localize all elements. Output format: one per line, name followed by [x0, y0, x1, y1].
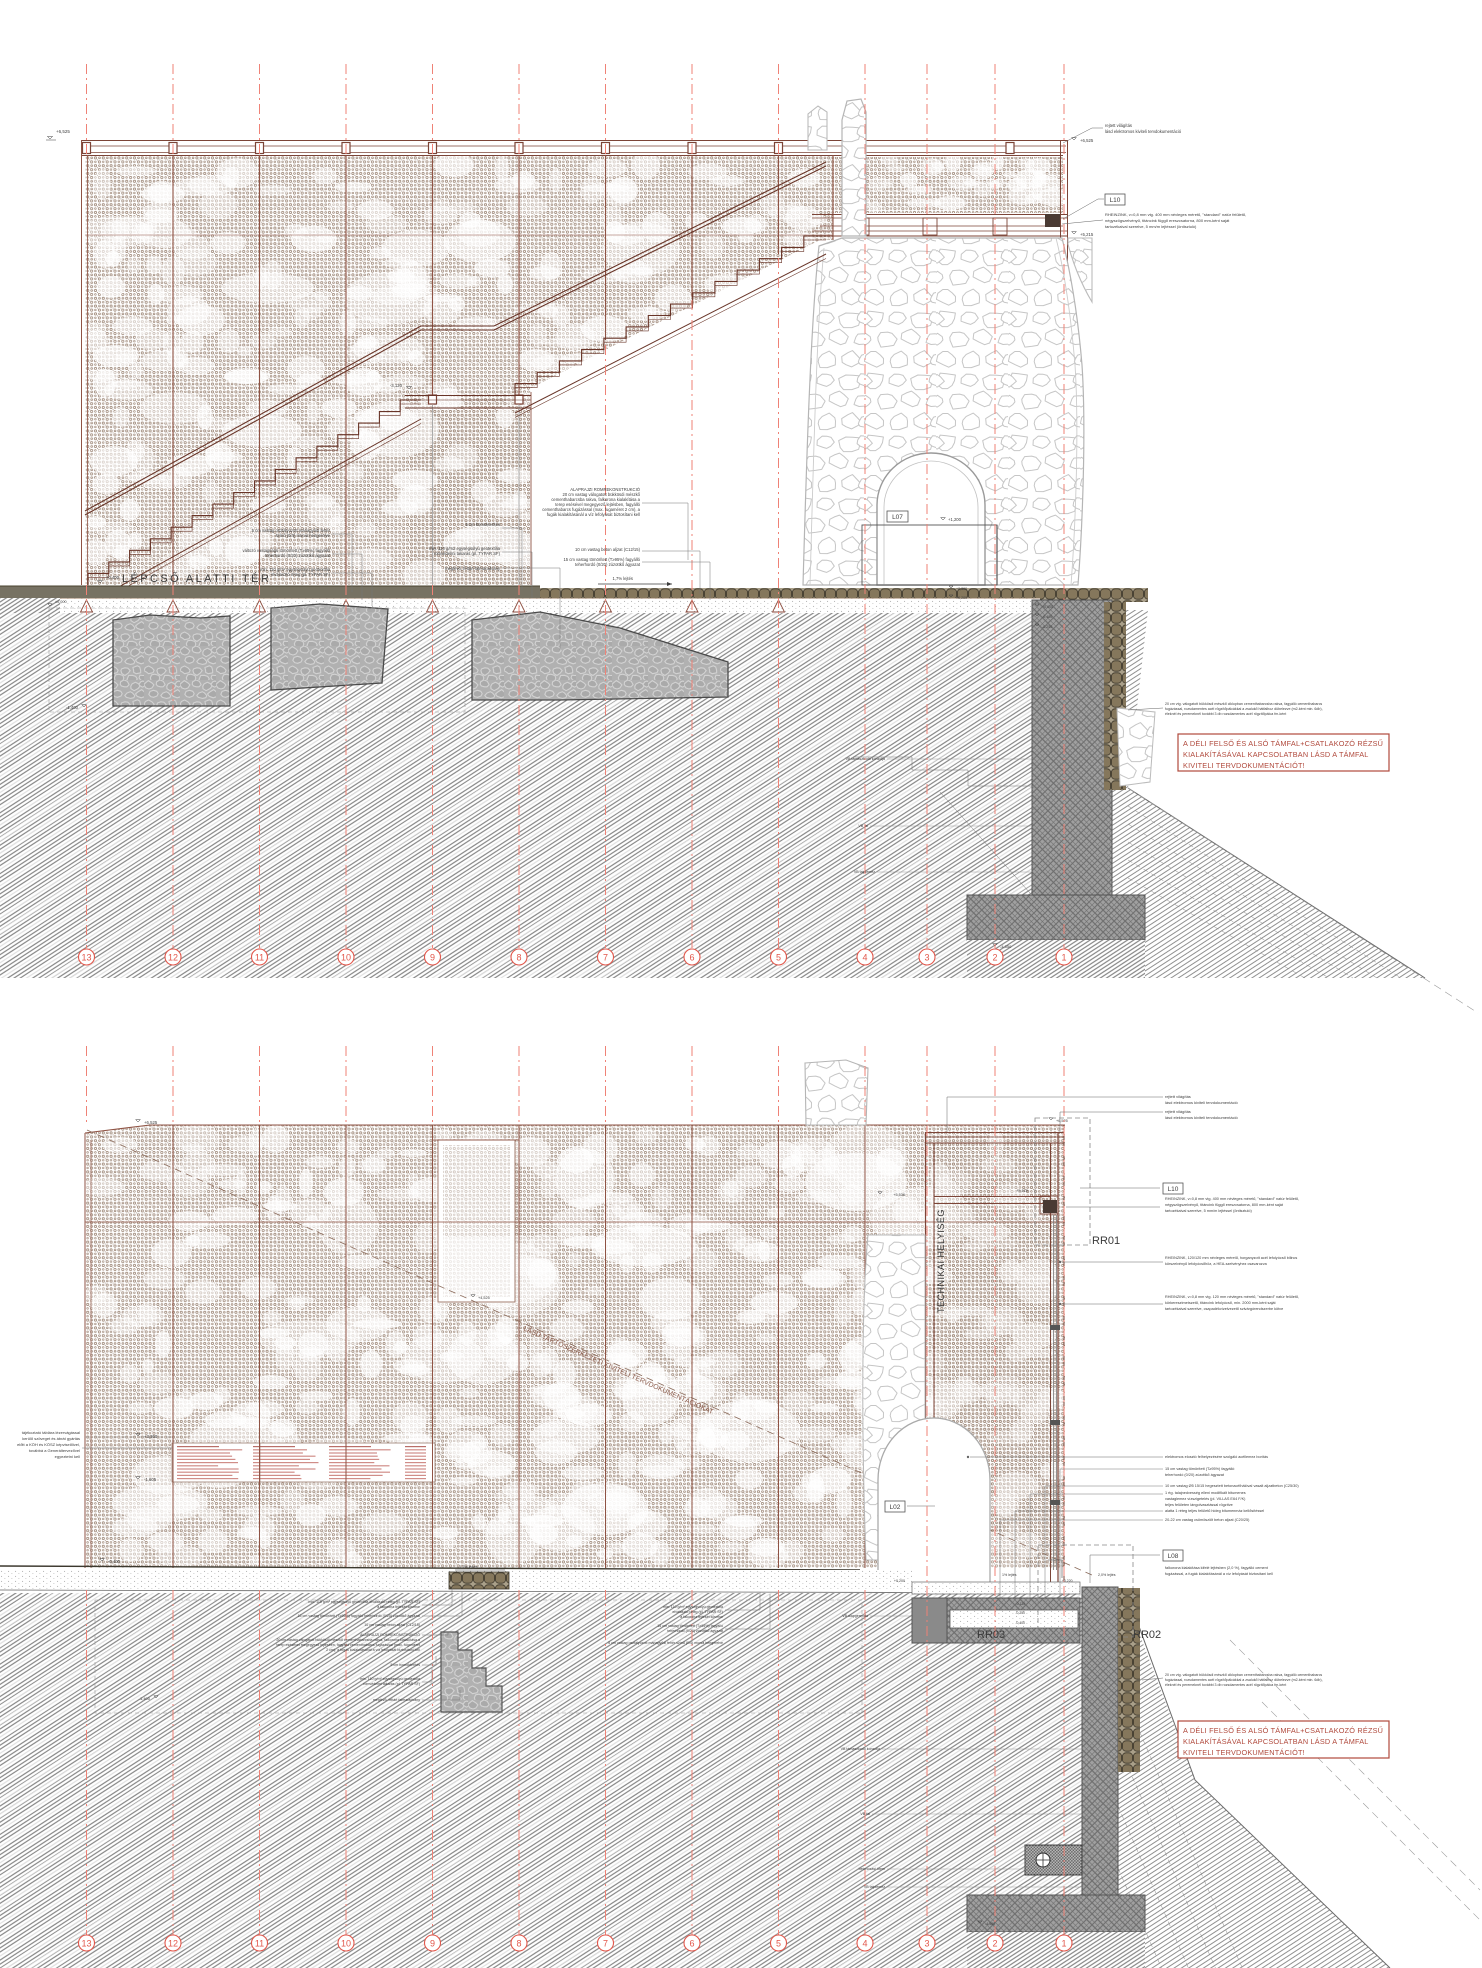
svg-text:teljes felületen lángolvasztás: teljes felületen lángolvasztással rögzít… [1165, 1503, 1233, 1507]
svg-text:1,7% lejtés: 1,7% lejtés [459, 1565, 478, 1569]
svg-text:1% lejtés: 1% lejtés [1002, 1573, 1017, 1577]
svg-text:5: 5 [776, 953, 781, 963]
svg-text:KIVITELI TERVDOKUMENTÁCIÓT!: KIVITELI TERVDOKUMENTÁCIÓT! [1183, 1748, 1305, 1757]
svg-text:VB fal: VB fal [858, 824, 868, 828]
svg-text:2: 2 [992, 1939, 997, 1949]
svg-text:rejtett világítás: rejtett világítás [1165, 1094, 1191, 1099]
svg-text:-1,400: -1,400 [66, 705, 79, 710]
svg-text:6: 6 [689, 1939, 694, 1949]
svg-text:+4,525: +4,525 [478, 1296, 490, 1300]
svg-text:10 cm vastag beton aljzat (C12: 10 cm vastag beton aljzat (C12/15) [364, 1623, 420, 1627]
svg-text:éleknél és peremeknél további: éleknél és peremeknél további 3 db rozsd… [1165, 712, 1286, 716]
svg-text:10 cm vastag beton aljzat (C12: 10 cm vastag beton aljzat (C12/15) [575, 547, 641, 552]
svg-text:11: 11 [255, 1939, 264, 1949]
svg-text:teherhordó (0/20) zúzottkő ágy: teherhordó (0/20) zúzottkő ágyazat [575, 562, 641, 567]
svg-text:tartozékaival szerelve, 5 mm/m: tartozékaival szerelve, 5 mm/m lejtéssel… [1105, 224, 1197, 229]
svg-text:4: 4 [862, 953, 867, 963]
svg-text:9: 9 [430, 1939, 435, 1949]
svg-text:+5,215: +5,215 [1080, 232, 1094, 237]
svg-text:+0,400: +0,400 [106, 575, 120, 580]
svg-text:20-22 cm vastag csömöszölt bet: 20-22 cm vastag csömöszölt beton aljzat … [1165, 1518, 1250, 1522]
svg-text:RHEINZINK, v=0,8 mm vtg. 400 m: RHEINZINK, v=0,8 mm vtg. 400 mm névleges… [1165, 1197, 1299, 1201]
svg-text:+5,510: +5,510 [1016, 1189, 1028, 1193]
svg-text:3: 3 [924, 1939, 929, 1949]
svg-text:négyszögszelvényű, titáncink f: négyszögszelvényű, titáncink függő eresz… [1165, 1203, 1284, 1207]
svg-text:L08: L08 [1168, 1553, 1179, 1560]
svg-text:12: 12 [168, 1939, 178, 1949]
svg-text:meglévő, feltárt falmaradvány: meglévő, feltárt falmaradvány [445, 566, 501, 571]
svg-text:20 cm vtg. válogatott bükkösdi: 20 cm vtg. válogatott bükkösdi mészkő ci… [1165, 1673, 1322, 1677]
svg-text:+0,300: +0,300 [956, 587, 967, 591]
svg-text:fugázással, a fugák kialakítás: fugázással, a fugák kialakításánál a víz… [1165, 1572, 1273, 1576]
svg-text:vastaglemez vízszigetelés (pl.: vastaglemez vízszigetelés (pl. VILLAS E6… [1165, 1497, 1246, 1501]
svg-text:+0,220: +0,220 [1062, 1579, 1073, 1583]
svg-text:ALAPRAJZI ROMREKONSTRUKCIÓ: ALAPRAJZI ROMREKONSTRUKCIÓ [360, 1632, 420, 1637]
svg-text:KIALAKÍTÁSÁVAL KAPCSOLATBAN LÁ: KIALAKÍTÁSÁVAL KAPCSOLATBAN LÁSD A TÁMFA… [1183, 750, 1369, 759]
svg-text:L07: L07 [892, 514, 903, 521]
svg-text:színű (0/4) murva hengerelve: színű (0/4) murva hengerelve [276, 533, 331, 538]
svg-text:5: 5 [776, 1939, 781, 1949]
svg-text:+3,300: +3,300 [144, 1434, 158, 1439]
svg-text:elválasztó réteg (pl. TYPAR SF: elválasztó réteg (pl. TYPAR SF) [672, 1610, 723, 1614]
svg-text:5 cm homokterítés: 5 cm homokterítés [390, 1663, 420, 1667]
svg-text:13: 13 [81, 1939, 91, 1949]
svg-text:falkorona kialakítása kifelé l: falkorona kialakítása kifelé lejtésben (… [1165, 1566, 1269, 1570]
svg-text:előtt a KÖH és KÖSZ képviselői: előtt a KÖH és KÖSZ képviselőivel, [17, 1442, 80, 1447]
svg-text:+6,525: +6,525 [144, 1120, 158, 1125]
svg-text:10 cm vastag Ø5 15/15 hegeszte: 10 cm vastag Ø5 15/15 hegesztett betonac… [1165, 1484, 1299, 1488]
svg-text:2: 2 [992, 953, 997, 963]
svg-text:min. 110 g/m² egységsúlyú geot: min. 110 g/m² egységsúlyú geotextília [360, 1677, 420, 1681]
svg-text:+6,525: +6,525 [1080, 138, 1094, 143]
svg-text:+0,200: +0,200 [894, 1579, 905, 1583]
svg-text:20 cm vastag válogatott bükkös: 20 cm vastag válogatott bükkösdi mészkő … [276, 1638, 420, 1642]
svg-text:+1,200: +1,200 [948, 517, 962, 522]
svg-text:elválasztó réteg (pl. TYPAR SF: elválasztó réteg (pl. TYPAR SF) [271, 572, 331, 577]
svg-text:-0,400: -0,400 [108, 1559, 121, 1564]
svg-text:RR01: RR01 [1092, 1235, 1120, 1247]
svg-text:tartozékaival szerelve, 5 mm/m: tartozékaival szerelve, 5 mm/m lejtéssel… [1165, 1209, 1252, 1213]
svg-text:teherhordó (0/20) zúzottkő ágy: teherhordó (0/20) zúzottkő ágyazat [1165, 1473, 1225, 1477]
svg-text:romvédelmi takarás (pl. TYPAR: romvédelmi takarás (pl. TYPAR SF) [363, 1682, 420, 1686]
svg-text:min. 110 g/m² egységsúlyú geot: min. 110 g/m² egységsúlyú geotextília [663, 1605, 723, 1609]
svg-text:továbbá a Generáltervezővel: továbbá a Generáltervezővel [29, 1448, 80, 1453]
svg-text:négyszögszelvényű, titáncink f: négyszögszelvényű, titáncink függő eresz… [1105, 218, 1230, 223]
svg-text:-0,400: -0,400 [1015, 1621, 1025, 1625]
svg-text:tájékoztató táblára lézervágás: tájékoztató táblára lézervágással [22, 1430, 80, 1435]
svg-text:L02: L02 [890, 1504, 901, 1511]
svg-text:13: 13 [81, 953, 91, 963]
svg-text:fugák kialakításánál a víz lef: fugák kialakításánál a víz lefolyását bi… [547, 512, 640, 517]
svg-text:5 cm vastag osztályozott mária: 5 cm vastag osztályozott máriagyűdi fehé… [608, 1641, 723, 1645]
svg-text:VB támaszkodó konzolja: VB támaszkodó konzolja [841, 1747, 880, 1751]
svg-text:VB fal: VB fal [860, 1812, 870, 1816]
svg-text:10: 10 [341, 953, 351, 963]
svg-text:VB alapgerenda: VB alapgerenda [842, 1614, 868, 1618]
svg-text:20 cm vtg. válogatott bükkösdi: 20 cm vtg. válogatott bükkösdi mészkő ci… [1165, 702, 1322, 706]
svg-text:éleknél és peremeknél további: éleknél és peremeknél további 3 db rozsd… [1165, 1683, 1286, 1687]
svg-text:romvédelmi takarás (pl. TYPAR: romvédelmi takarás (pl. TYPAR SF) [434, 551, 501, 556]
svg-text:12: 12 [168, 953, 178, 963]
svg-text:-0,110: -0,110 [1016, 1602, 1025, 1606]
svg-text:tartozékaival szerelve, csapad: tartozékaival szerelve, csapadékvízelvez… [1165, 1307, 1283, 1311]
svg-text:+0,000: +0,000 [1042, 605, 1053, 609]
svg-text:-4,550: -4,550 [985, 1922, 995, 1926]
svg-text:1 rtg. talajnedvesség elleni m: 1 rtg. talajnedvesség elleni modifikált … [1165, 1491, 1246, 1495]
svg-text:fugázással, rozsdamentes acél: fugázással, rozsdamentes acél rögzítőpál… [1165, 1678, 1323, 1682]
svg-text:rejtett világítás: rejtett világítás [1165, 1109, 1191, 1114]
svg-text:elektromos elosztó felhelyezés: elektromos elosztó felhelyezésére szolgá… [1165, 1455, 1268, 1459]
svg-text:4: 4 [862, 1939, 867, 1949]
svg-text:L10: L10 [1168, 1186, 1179, 1193]
svg-text:3: 3 [924, 953, 929, 963]
svg-text:RHEINZINK, v=0,8 mm vtg. 400 m: RHEINZINK, v=0,8 mm vtg. 400 mm névleges… [1105, 212, 1246, 217]
svg-text:teherhordó (0/20) zúzottkő ágy: teherhordó (0/20) zúzottkő ágyazat [667, 1629, 723, 1633]
svg-text:11: 11 [255, 953, 264, 963]
svg-text:RR02: RR02 [1133, 1629, 1161, 1641]
svg-text:L10: L10 [1110, 197, 1121, 204]
svg-text:kerülő szöveget és ábrát gyárt: kerülő szöveget és ábrát gyártás [22, 1436, 80, 1441]
svg-text:6: 6 [689, 953, 694, 963]
svg-text:-0,400: -0,400 [1042, 615, 1052, 619]
svg-text:2,0% lejtés: 2,0% lejtés [1098, 1573, 1116, 1577]
svg-text:lásd elektromos kiviteli tervd: lásd elektromos kiviteli tervdokumentáci… [1105, 129, 1182, 134]
svg-text:lásd elektromos kiviteli tervd: lásd elektromos kiviteli tervdokumentáci… [1165, 1115, 1238, 1120]
svg-text:terep esésével megegyező lejté: terep esésével megegyező lejtésben, fagy… [276, 1643, 420, 1647]
svg-text:9: 9 [430, 953, 435, 963]
svg-text:15 cm vastag tömörített (T≥95%: 15 cm vastag tömörített (T≥95%) fagyálló… [298, 1614, 420, 1618]
svg-text:körszelvényű lefolyócsőhöz, a: körszelvényű lefolyócsőhöz, a HEA-szelvé… [1165, 1262, 1268, 1266]
svg-text:-1,605: -1,605 [144, 1477, 157, 1482]
svg-text:10: 10 [341, 1939, 351, 1949]
svg-text:a fakorona lejtését követve: a fakorona lejtését követve [680, 1615, 723, 1619]
svg-text:+5,536: +5,536 [893, 1193, 905, 1197]
svg-text:betonozási ütem: betonozási ütem [859, 1867, 885, 1871]
svg-text:KIALAKÍTÁSÁVAL KAPCSOLATBAN LÁ: KIALAKÍTÁSÁVAL KAPCSOLATBAN LÁSD A TÁMFA… [1183, 1737, 1369, 1746]
svg-text:8: 8 [516, 953, 521, 963]
svg-text:fugázással, rozsdamentes acél: fugázással, rozsdamentes acél rögzítőpál… [1165, 707, 1323, 711]
svg-text:15 cm vastag tömörített (T≥95%: 15 cm vastag tömörített (T≥95%) fagyálló [1165, 1467, 1234, 1471]
svg-text:alatta 1 réteg teljes felületű: alatta 1 réteg teljes felületű hideg bit… [1165, 1509, 1264, 1513]
svg-text:A DÉLI FELSŐ ÉS ALSÓ TÁMFAL+CS: A DÉLI FELSŐ ÉS ALSÓ TÁMFAL+CSATLAKOZÓ R… [1183, 1726, 1383, 1735]
svg-text:8: 8 [516, 1939, 521, 1949]
svg-text:+6,525: +6,525 [56, 129, 70, 134]
svg-text:RHEINZINK, v=0,8 mm vtg. 120 m: RHEINZINK, v=0,8 mm vtg. 120 mm névleges… [1165, 1295, 1299, 1299]
svg-text:-0,250: -0,250 [1042, 625, 1052, 629]
svg-text:A DÉLI FELSŐ ÉS ALSÓ TÁMFAL+CS: A DÉLI FELSŐ ÉS ALSÓ TÁMFAL+CSATLAKOZÓ R… [1183, 739, 1383, 748]
svg-text:körkeresztmetszetű, titáncink: körkeresztmetszetű, titáncink lefolyócső… [1165, 1301, 1277, 1305]
svg-text:5 cm homokterítés: 5 cm homokterítés [466, 522, 500, 527]
svg-text:+6,525: +6,525 [1056, 1119, 1068, 1123]
svg-text:egyeztetni kell: egyeztetni kell [55, 1454, 80, 1459]
svg-text:+0,200: +0,200 [956, 596, 967, 600]
svg-text:±0,000: ±0,000 [55, 600, 67, 604]
svg-text:teherhordó (0/20) zúzottkő ágy: teherhordó (0/20) zúzottkő ágyazat [265, 553, 331, 558]
svg-text:VB talplemez: VB talplemez [864, 1885, 885, 1889]
svg-text:1,7% lejtés: 1,7% lejtés [613, 576, 633, 581]
svg-text:-1,400: -1,400 [139, 1696, 151, 1701]
svg-text:TECHNIKAI HELYISÉG: TECHNIKAI HELYISÉG [936, 1209, 946, 1313]
svg-text:1: 1 [1061, 953, 1066, 963]
svg-text:rejtett világítás: rejtett világítás [1105, 123, 1132, 128]
svg-text:a fakorona lejtését követve: a fakorona lejtését követve [377, 1605, 420, 1609]
svg-text:7: 7 [603, 1939, 608, 1949]
svg-text:RHEINZINK, 120/120 mm névleges: RHEINZINK, 120/120 mm névleges méretű, h… [1165, 1256, 1297, 1260]
svg-text:15 cm vastag tömörített (T≥95%: 15 cm vastag tömörített (T≥95%) fagyálló [657, 1624, 723, 1628]
svg-text:RR03: RR03 [977, 1629, 1005, 1641]
svg-text:-0,250: -0,250 [1015, 1611, 1025, 1615]
svg-text:1: 1 [1061, 1939, 1066, 1949]
svg-text:LÉPCSŐ ALATTI TÉR: LÉPCSŐ ALATTI TÉR [122, 571, 271, 585]
svg-text:2 cm), a fugák kialakításánál: 2 cm), a fugák kialakításánál a víz lefo… [326, 1648, 420, 1652]
svg-text:KIVITELI TERVDOKUMENTÁCIÓT!: KIVITELI TERVDOKUMENTÁCIÓT! [1183, 761, 1305, 770]
svg-text:lásd elektromos kiviteli tervd: lásd elektromos kiviteli tervdokumentáci… [1165, 1100, 1238, 1105]
svg-text:7: 7 [603, 953, 608, 963]
svg-text:meglévő, feltárt falmaradvány: meglévő, feltárt falmaradvány [373, 1698, 420, 1702]
svg-text:-3,120: -3,120 [390, 383, 403, 388]
svg-text:-4,550: -4,550 [1000, 944, 1012, 949]
svg-text:min. 110 g/m² egységsúlyú geot: min. 110 g/m² egységsúlyú geotextília el… [308, 1600, 420, 1604]
